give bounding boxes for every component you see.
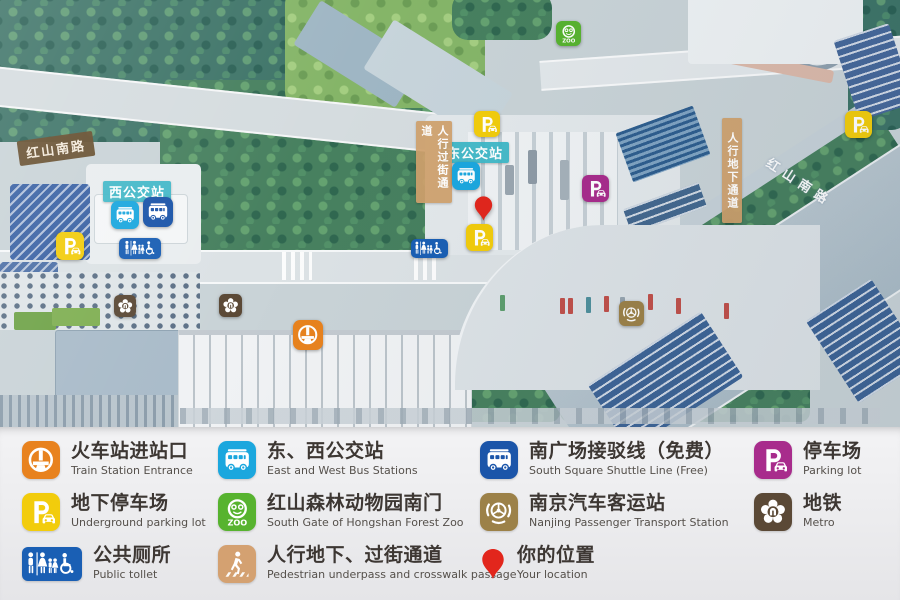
bus-vehicle — [568, 298, 573, 314]
legend-label-en: Train Station Entrance — [71, 464, 193, 477]
legend-item-metro: 地铁Metro — [754, 493, 862, 545]
legend-item-toilet: 公共厕所Public tollet — [22, 545, 206, 597]
platform-band — [180, 408, 880, 424]
map-marker-toilet-icon — [119, 238, 161, 259]
legend-item-pedestrian: 人行地下、过街通道Pedestrian underpass and crossw… — [218, 545, 517, 597]
bus-vehicle — [676, 298, 681, 314]
legend-item-parking-yellow: 地下停车场Underground parking lot — [22, 493, 206, 545]
map-marker-parking-magenta-icon — [582, 175, 609, 202]
transport-icon — [480, 493, 518, 531]
legend-label-en: Underground parking lot — [71, 516, 206, 529]
lawn — [14, 312, 56, 330]
bus-vehicle — [560, 160, 569, 200]
map-marker-metro-icon — [219, 294, 242, 317]
aerial-map: 红山南路红山南路西公交站东公交站人行过街通道人行地下通道 ZOO — [0, 0, 900, 427]
pin-icon — [480, 545, 506, 583]
bus-vehicle — [500, 295, 505, 311]
crosswalk — [282, 252, 312, 280]
legend-item-bus-dark: 南广场接驳线（免费）South Square Shuttle Line (Fre… — [480, 441, 729, 493]
map-marker-zoo-icon: ZOO — [556, 21, 581, 46]
legend-label-en: Your location — [517, 568, 595, 581]
svg-text:ZOO: ZOO — [227, 517, 247, 527]
legend-column-3: 南广场接驳线（免费）South Square Shuttle Line (Fre… — [480, 441, 729, 597]
metro-icon — [754, 493, 792, 531]
legend-column-4: 停车场Parking lot地铁Metro — [754, 441, 862, 545]
legend-panel: 火车站进站口Train Station Entrance地下停车场Undergr… — [0, 427, 900, 600]
legend-item-text: 南京汽车客运站Nanjing Passenger Transport Stati… — [529, 493, 729, 529]
legend-label-zh: 你的位置 — [517, 545, 595, 567]
legend-label-zh: 地铁 — [803, 493, 842, 515]
bus-vehicle — [528, 150, 537, 184]
legend-item-text: 你的位置Your location — [517, 545, 595, 581]
legend-label-zh: 停车场 — [803, 441, 862, 463]
car-park-rows — [833, 23, 900, 121]
legend-item-text: 地下停车场Underground parking lot — [71, 493, 206, 529]
legend-item-text: 公共厕所Public tollet — [93, 545, 171, 581]
rail-yard — [0, 395, 185, 427]
forest-area — [452, 0, 552, 40]
bus-vehicle — [648, 294, 653, 310]
bus-vehicle — [604, 296, 609, 312]
building-complex — [688, 0, 863, 64]
bus-light-icon — [218, 441, 256, 479]
map-marker-parking-yellow-icon — [845, 111, 872, 138]
legend-column-2: 东、西公交站East and West Bus StationsZOO红山森林动… — [218, 441, 517, 597]
legend-label-zh: 公共厕所 — [93, 545, 171, 567]
map-marker-bus-light-icon — [111, 201, 139, 229]
zoo-icon: ZOO — [218, 493, 256, 531]
legend-label-zh: 火车站进站口 — [71, 441, 193, 463]
legend-item-text: 红山森林动物园南门South Gate of Hongshan Forest Z… — [267, 493, 464, 529]
legend-item-text: 东、西公交站East and West Bus Stations — [267, 441, 418, 477]
map-marker-transport-icon — [619, 301, 644, 326]
lawn — [52, 308, 100, 326]
map-marker-bus-dark-icon — [143, 197, 173, 227]
underground-passage-label: 人行地下通道 — [722, 118, 742, 223]
legend-item-text: 地铁Metro — [803, 493, 842, 529]
parking-yellow-icon — [22, 493, 60, 531]
map-marker-parking-yellow-icon — [466, 224, 493, 251]
legend-label-zh: 红山森林动物园南门 — [267, 493, 464, 515]
legend-item-text: 南广场接驳线（免费）South Square Shuttle Line (Fre… — [529, 441, 724, 477]
railway-icon — [22, 441, 60, 479]
legend-item-pin: 你的位置Your location — [480, 545, 729, 597]
pedestrian-icon — [218, 545, 256, 583]
legend-label-en: Nanjing Passenger Transport Station — [529, 516, 729, 529]
legend-item-text: 火车站进站口Train Station Entrance — [71, 441, 193, 477]
legend-column-1: 火车站进站口Train Station Entrance地下停车场Undergr… — [22, 441, 206, 597]
map-marker-railway-icon — [293, 320, 323, 350]
legend-label-en: South Square Shuttle Line (Free) — [529, 464, 724, 477]
bus-vehicle — [724, 303, 729, 319]
legend-item-parking-magenta: 停车场Parking lot — [754, 441, 862, 493]
legend-label-zh: 南广场接驳线（免费） — [529, 441, 724, 463]
map-marker-pin-icon — [473, 195, 494, 222]
parking-magenta-icon — [754, 441, 792, 479]
legend-item-bus-light: 东、西公交站East and West Bus Stations — [218, 441, 517, 493]
map-marker-bus-light-icon — [452, 162, 480, 190]
legend-label-en: Public tollet — [93, 568, 171, 581]
legend-item-railway: 火车站进站口Train Station Entrance — [22, 441, 206, 493]
map-marker-metro-icon — [114, 295, 136, 317]
bus-vehicle — [586, 297, 591, 313]
legend-item-transport: 南京汽车客运站Nanjing Passenger Transport Stati… — [480, 493, 729, 545]
map-marker-parking-yellow-icon — [56, 232, 84, 260]
legend-label-zh: 地下停车场 — [71, 493, 206, 515]
svg-text:ZOO: ZOO — [562, 38, 575, 44]
crosswalk-passage-label: 人行过街通道 — [416, 121, 452, 203]
station-map-sign: 红山南路红山南路西公交站东公交站人行过街通道人行地下通道 ZOO 火车站进站口T… — [0, 0, 900, 600]
bus-vehicle — [505, 165, 514, 195]
map-marker-parking-yellow-icon — [474, 111, 500, 137]
toilet-icon — [22, 547, 82, 581]
map-marker-toilet-icon — [411, 239, 448, 258]
legend-label-en: East and West Bus Stations — [267, 464, 418, 477]
legend-label-en: South Gate of Hongshan Forest Zoo — [267, 516, 464, 529]
legend-label-en: Parking lot — [803, 464, 862, 477]
legend-label-zh: 东、西公交站 — [267, 441, 418, 463]
bus-vehicle — [560, 298, 565, 314]
legend-item-zoo: ZOO红山森林动物园南门South Gate of Hongshan Fores… — [218, 493, 517, 545]
station-west-buildings — [55, 330, 187, 404]
bus-dark-icon — [480, 441, 518, 479]
legend-label-zh: 南京汽车客运站 — [529, 493, 729, 515]
legend-item-text: 停车场Parking lot — [803, 441, 862, 477]
legend-label-en: Metro — [803, 516, 842, 529]
